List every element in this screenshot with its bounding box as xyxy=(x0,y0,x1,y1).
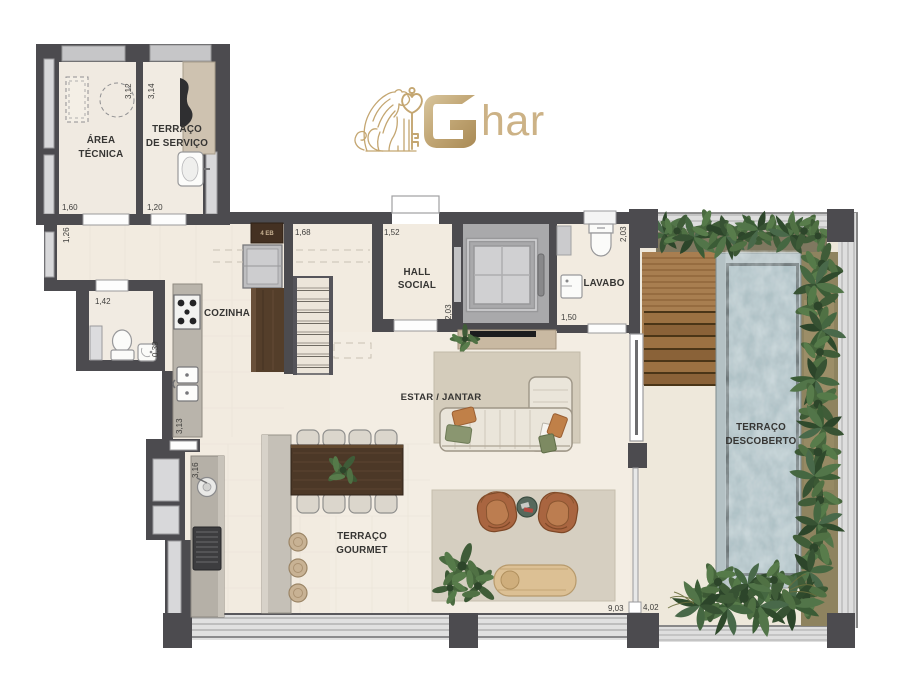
svg-text:1,60: 1,60 xyxy=(62,203,78,212)
svg-text:1,20: 1,20 xyxy=(147,203,163,212)
svg-text:TÉCNICA: TÉCNICA xyxy=(79,148,124,160)
svg-text:1,42: 1,42 xyxy=(95,297,111,306)
svg-text:SOCIAL: SOCIAL xyxy=(398,280,436,291)
svg-text:DE SERVIÇO: DE SERVIÇO xyxy=(146,138,208,149)
svg-text:TERRAÇO: TERRAÇO xyxy=(152,124,202,135)
svg-text:1,26: 1,26 xyxy=(62,227,71,243)
svg-text:2,03: 2,03 xyxy=(444,304,453,320)
svg-text:3,12: 3,12 xyxy=(124,83,133,99)
svg-text:ÁREA: ÁREA xyxy=(87,134,116,146)
svg-text:3,13: 3,13 xyxy=(175,418,184,434)
svg-text:3,16: 3,16 xyxy=(191,462,200,478)
svg-text:1,50: 1,50 xyxy=(561,313,577,322)
svg-text:COZINHA: COZINHA xyxy=(204,308,250,319)
svg-text:1,52: 1,52 xyxy=(384,228,400,237)
svg-text:HALL: HALL xyxy=(404,267,431,278)
svg-text:4,02: 4,02 xyxy=(643,603,659,612)
svg-text:LAVABO: LAVABO xyxy=(583,278,624,289)
svg-text:2,03: 2,03 xyxy=(619,226,628,242)
svg-text:TERRAÇO: TERRAÇO xyxy=(736,422,786,433)
svg-text:0,39: 0,39 xyxy=(151,341,160,357)
svg-text:4 EB: 4 EB xyxy=(260,231,274,237)
svg-text:DESCOBERTO: DESCOBERTO xyxy=(726,436,797,447)
svg-text:har: har xyxy=(481,97,545,145)
svg-text:1,68: 1,68 xyxy=(295,228,311,237)
svg-text:GOURMET: GOURMET xyxy=(336,545,387,556)
svg-text:TERRAÇO: TERRAÇO xyxy=(337,531,387,542)
svg-text:ESTAR / JANTAR: ESTAR / JANTAR xyxy=(401,392,482,403)
svg-text:3,14: 3,14 xyxy=(147,83,156,99)
svg-text:9,03: 9,03 xyxy=(608,604,624,613)
